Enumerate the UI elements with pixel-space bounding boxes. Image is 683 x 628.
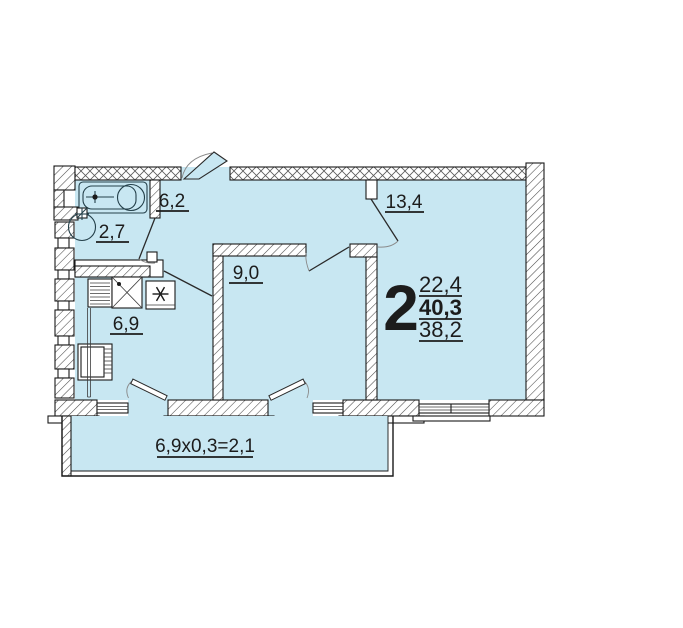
living-room-window (419, 404, 489, 413)
top-wall-right (230, 167, 526, 180)
living-room-door-jamb (366, 180, 377, 199)
balcony-left-wall (62, 416, 71, 476)
bedroom-left-wall (213, 244, 223, 400)
reduced-area-label: 38,2 (419, 317, 462, 342)
hallway-area-label: 6,2 (159, 191, 185, 212)
right-wall (526, 163, 544, 400)
refrigerator (78, 344, 112, 380)
stove (146, 281, 175, 309)
apartment-summary: 2 22,4 40,3 38,2 (383, 272, 463, 344)
kitchen-drainboard (88, 279, 112, 307)
rooms-count-label: 2 (383, 272, 419, 344)
living-room-wall-flange (350, 244, 377, 257)
living-room-area-label: 13,4 (386, 192, 423, 213)
kitchen-window (97, 403, 128, 413)
left-wall-duct-column (55, 222, 74, 398)
living-area-label: 22,4 (419, 272, 462, 297)
bedroom-area-label: 9,0 (233, 263, 259, 284)
bedroom-top-wall (213, 244, 306, 256)
top-left-corner-wall (54, 166, 78, 220)
floor-plan-canvas: 6,2 2,7 6,9 9,0 13,4 2 22,4 40,3 38,2 6,… (0, 0, 683, 628)
top-wall-left (75, 167, 181, 180)
kitchen-sink (112, 277, 142, 308)
floor-plan: 6,2 2,7 6,9 9,0 13,4 2 22,4 40,3 38,2 6,… (0, 0, 683, 628)
bedroom-window (313, 403, 343, 413)
living-room-left-wall (366, 257, 377, 400)
bathroom-area-label: 2,7 (99, 222, 125, 243)
balcony-area-label: 6,9x0,3=2,1 (155, 436, 255, 457)
kitchen-area-label: 6,9 (113, 314, 139, 335)
